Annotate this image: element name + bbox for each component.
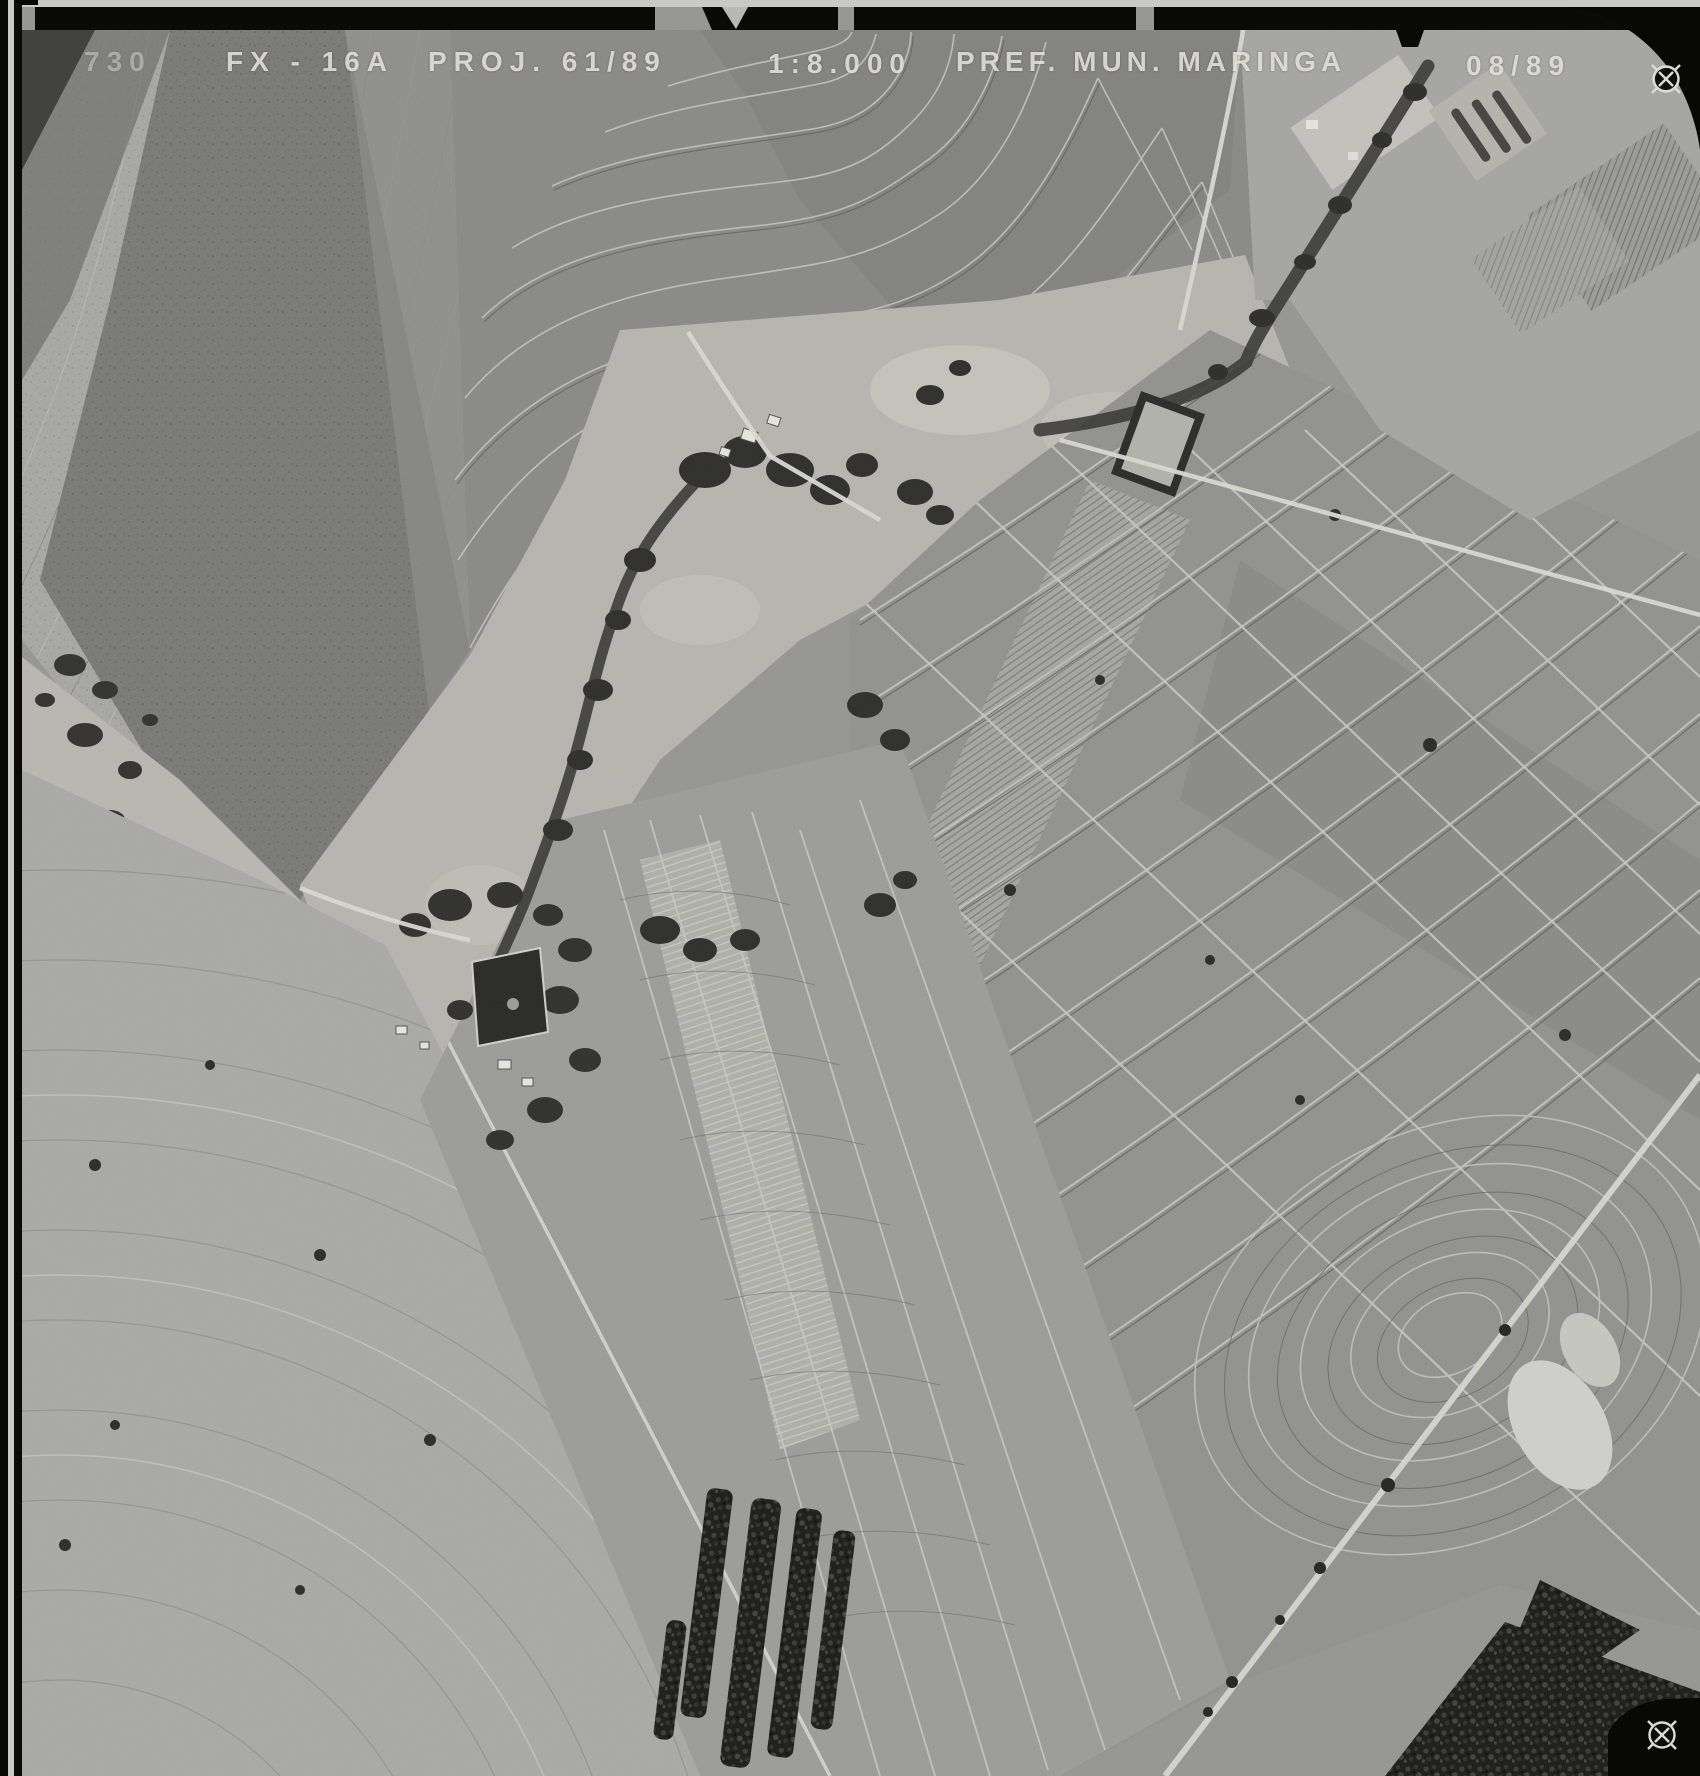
film-border-left-outer — [0, 0, 8, 1776]
film-border-left-inner — [14, 0, 22, 1776]
annotation-scale: 1:8.000 — [768, 48, 912, 80]
annotation-photo-number: 730 — [84, 46, 152, 78]
annotation-flight-line: FX - 16A — [226, 46, 394, 78]
annotation-authority: PREF. MUN. MARINGA — [956, 46, 1346, 78]
annotation-date: 08/89 — [1466, 50, 1571, 82]
aerial-photo-sheet: 730 FX - 16A PROJ. 61/89 1:8.000 PREF. M… — [0, 0, 1700, 1776]
annotation-project: PROJ. 61/89 — [428, 46, 667, 78]
aerial-terrain-image — [0, 0, 1700, 1776]
film-edge-strip-top — [22, 0, 1700, 7]
